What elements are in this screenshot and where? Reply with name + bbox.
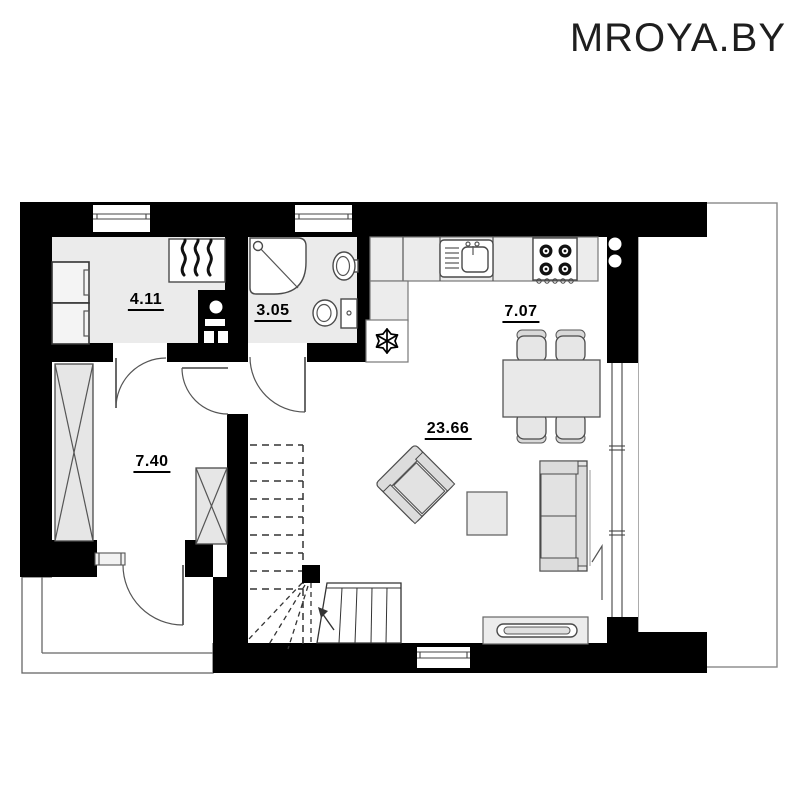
shower-cabin-icon bbox=[250, 238, 306, 294]
wardrobe-right bbox=[196, 468, 227, 544]
room-label-kitchen: 7.07 bbox=[502, 304, 539, 323]
tv-stand bbox=[483, 617, 588, 644]
entrance-threshold bbox=[95, 553, 125, 565]
watermark-logo: MROYA.BY bbox=[570, 16, 786, 61]
chair bbox=[517, 336, 546, 362]
stair-newel-post bbox=[302, 565, 320, 583]
window-east-glazing bbox=[607, 363, 638, 617]
floor-plan-drawing bbox=[0, 0, 800, 800]
floor-plan-page: 4.11 3.05 7.40 7.07 23.66 MROYA.BY bbox=[0, 0, 800, 800]
room-label-hallway: 7.40 bbox=[133, 454, 170, 473]
window-bathroom bbox=[295, 205, 352, 232]
dining-table bbox=[503, 360, 600, 417]
room-label-bathroom: 3.05 bbox=[254, 303, 291, 322]
boiler bbox=[169, 239, 225, 282]
room-label-living: 23.66 bbox=[425, 421, 472, 440]
window-utility bbox=[93, 205, 150, 232]
window-bottom bbox=[417, 647, 470, 668]
kitchen-sink-icon bbox=[440, 240, 493, 277]
four-burner-stove-icon bbox=[533, 238, 577, 283]
washer-dryer bbox=[52, 262, 89, 344]
chair bbox=[556, 336, 585, 362]
room-label-utility: 4.11 bbox=[128, 292, 164, 311]
terrace-outline bbox=[638, 203, 777, 667]
wardrobe-left bbox=[55, 364, 93, 541]
sofa bbox=[540, 461, 590, 571]
coffee-table bbox=[467, 492, 507, 535]
stairs-lower-flight bbox=[317, 583, 401, 643]
fridge bbox=[366, 320, 408, 362]
